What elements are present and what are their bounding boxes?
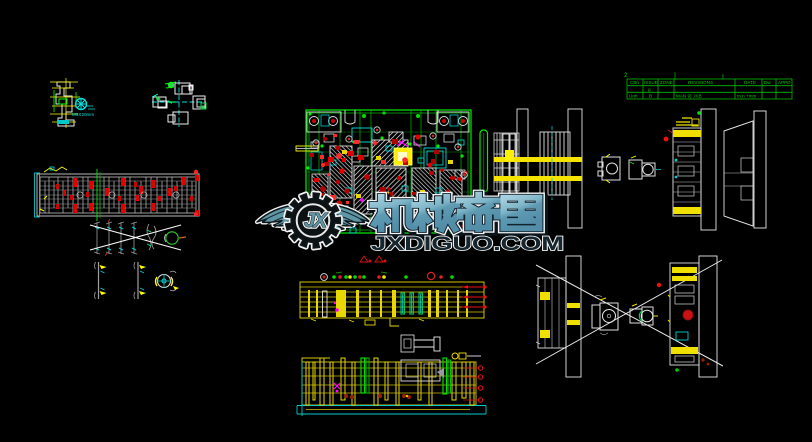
svg-text:m.n.+mm: m.n.+mm bbox=[737, 94, 756, 99]
svg-text:APPD: APPD bbox=[778, 80, 791, 85]
svg-text:Unh: Unh bbox=[629, 94, 638, 99]
svg-text:CBn: CBn bbox=[630, 80, 639, 85]
svg-text:DATE: DATE bbox=[744, 80, 756, 85]
svg-text:JXDIGUO.COM: JXDIGUO.COM bbox=[371, 233, 564, 255]
svg-text:ISSUE: ISSUE bbox=[644, 80, 658, 85]
svg-text:M6X20mm: M6X20mm bbox=[72, 112, 94, 117]
svg-text:2: 2 bbox=[624, 72, 628, 79]
svg-text:g: g bbox=[648, 87, 651, 92]
svg-text:Dw: Dw bbox=[764, 80, 771, 85]
svg-text:REVISIONS: REVISIONS bbox=[688, 80, 713, 85]
svg-text:ZONE: ZONE bbox=[660, 80, 673, 85]
svg-text:JX: JX bbox=[304, 210, 329, 232]
svg-text:MAN 9) .IKB: MAN 9) .IKB bbox=[676, 94, 702, 99]
svg-text:B: B bbox=[649, 94, 652, 99]
